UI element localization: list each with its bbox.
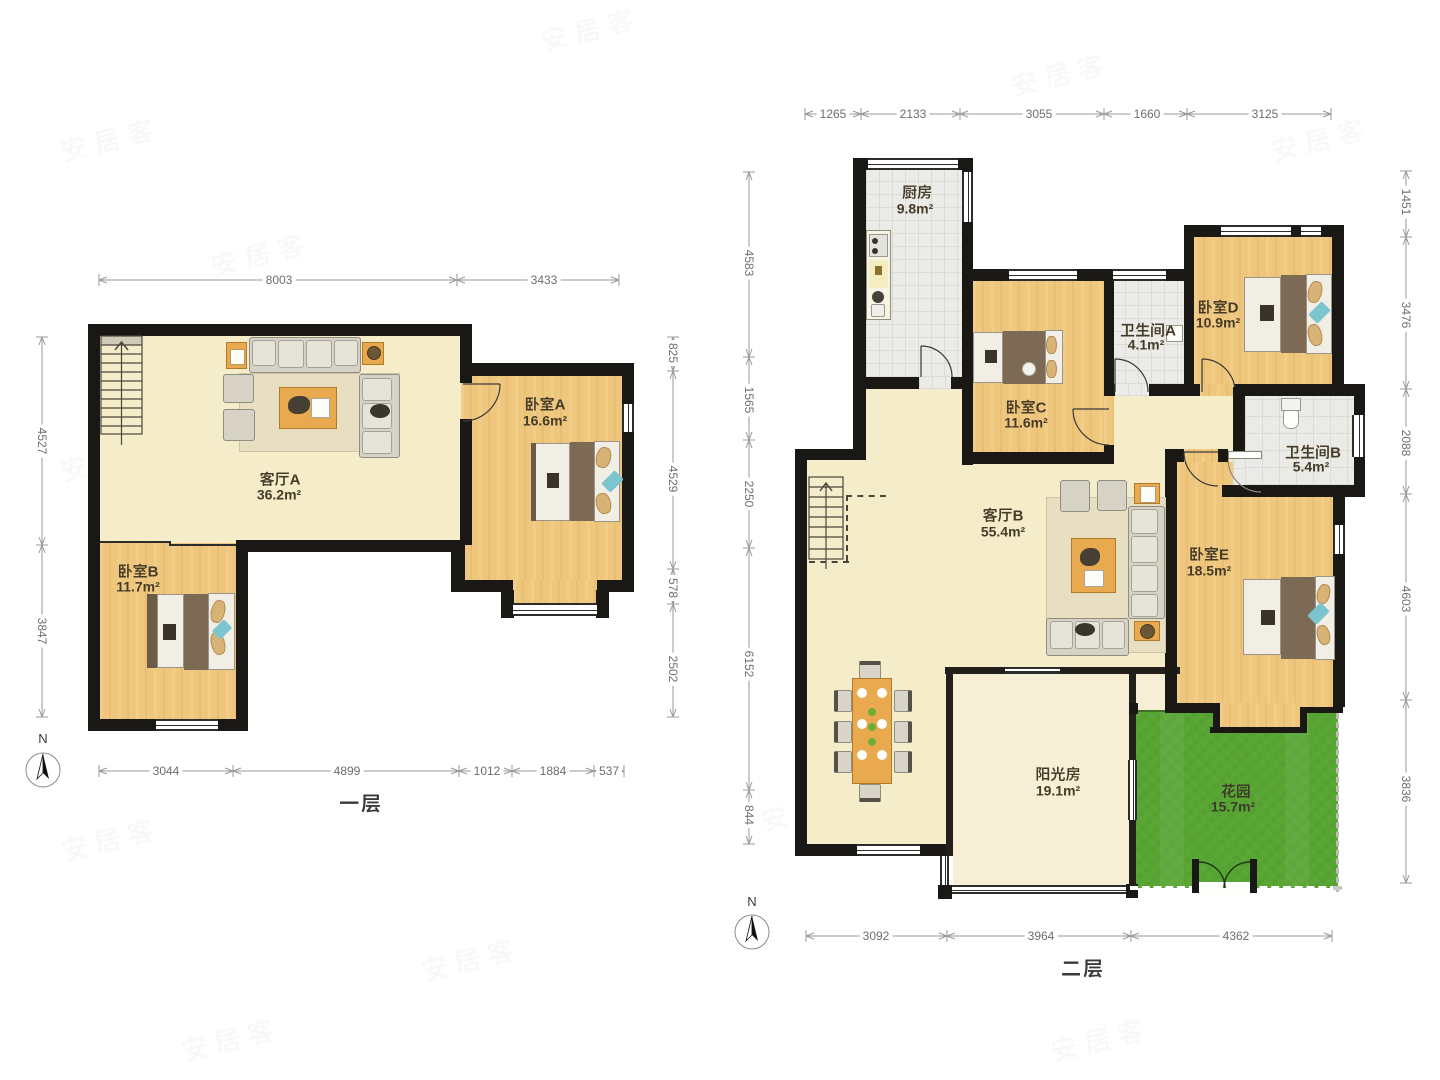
svg-text:N: N [38, 731, 47, 746]
svg-text:N: N [747, 894, 756, 909]
